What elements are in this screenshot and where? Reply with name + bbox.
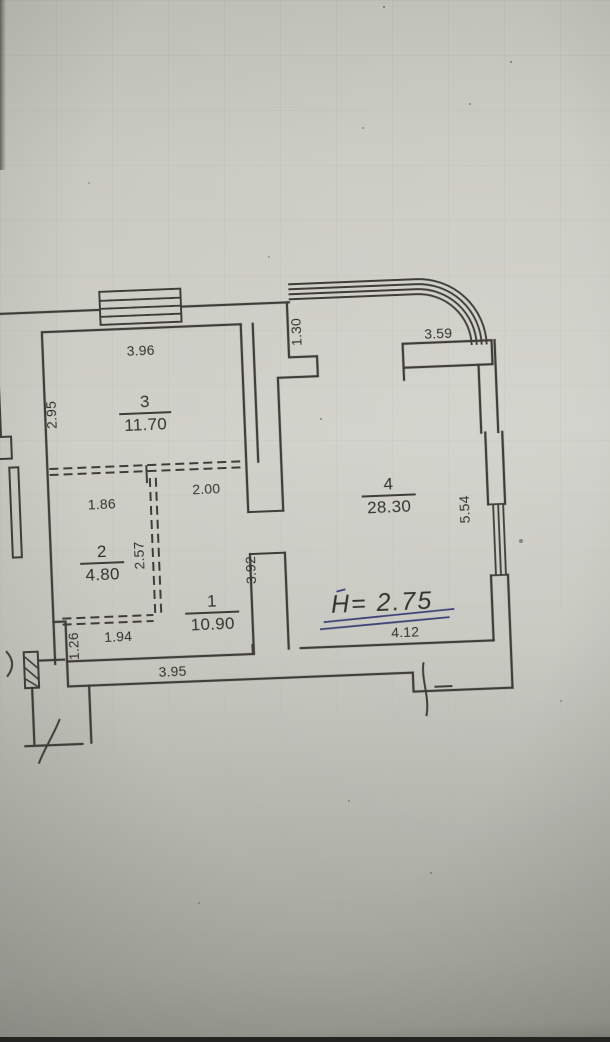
middle-wall-right-lower — [285, 553, 289, 649]
room3-area: 11.70 — [124, 414, 168, 435]
partition-lower — [62, 615, 153, 625]
shaft-symbol — [99, 289, 181, 325]
room4-label: 4 28.30 — [361, 473, 417, 517]
dim-partition-lower: 1.94 — [104, 628, 133, 645]
break-mark-left — [37, 720, 61, 763]
room3-label: 3 11.70 — [118, 391, 172, 435]
room4-area: 28.30 — [367, 497, 412, 518]
dim-room4-right: 5.54 — [456, 495, 473, 524]
pier-hatch — [25, 656, 56, 687]
dim-partition-right: 2.00 — [192, 480, 221, 497]
room4-number: 4 — [383, 474, 393, 493]
ceiling-height-text: H= 2.75 — [330, 587, 433, 619]
doorway-caps — [248, 511, 285, 554]
floorplan-photo: 3.96 2.95 1.86 2.00 2.57 1.94 1.26 3.95 … — [0, 0, 610, 1042]
dim-room3-left: 2.95 — [43, 401, 60, 430]
bottom-outer-wall — [67, 644, 512, 706]
room2-area: 4.80 — [85, 564, 120, 584]
right-wall-inner — [479, 365, 494, 641]
handwritten-note: H= 2.75 — [318, 585, 454, 629]
floor-plan-drawing: 3.96 2.95 1.86 2.00 2.57 1.94 1.26 3.95 … — [0, 0, 610, 1042]
middle-wall-left — [241, 324, 254, 654]
dim-room3-top: 3.96 — [126, 342, 155, 359]
dim-balcony-left: 1.30 — [288, 318, 305, 347]
dim-room4-top: 3.59 — [424, 325, 453, 342]
room4-bottom-inner — [301, 640, 494, 648]
dim-left-wall-lower: 1.26 — [65, 632, 82, 661]
dim-partition-vertical: 2.57 — [130, 541, 147, 570]
dim-room4-bottom: 4.12 — [391, 623, 420, 640]
room1-area: 10.90 — [190, 614, 235, 635]
window-right — [488, 504, 508, 576]
room1-label: 1 10.90 — [184, 591, 240, 635]
dim-partition-left: 1.86 — [87, 495, 116, 512]
break-mark-middle — [423, 662, 453, 715]
bottom-left-leg — [23, 686, 91, 747]
room2-label: 2 4.80 — [79, 541, 125, 585]
dashed-partitions — [49, 461, 251, 625]
room1-number: 1 — [207, 591, 217, 610]
room2-number: 2 — [97, 542, 107, 561]
walls — [0, 294, 515, 764]
partition-vertical — [150, 478, 161, 614]
dim-room1-bottom: 3.95 — [158, 663, 187, 680]
left-edge-fragments — [0, 313, 27, 675]
middle-wall-second — [253, 324, 259, 462]
room3-number: 3 — [140, 392, 150, 411]
photo-bottom-edge — [0, 1037, 610, 1042]
partition-junction — [146, 465, 147, 483]
dim-room1-right: 3.92 — [242, 556, 259, 585]
